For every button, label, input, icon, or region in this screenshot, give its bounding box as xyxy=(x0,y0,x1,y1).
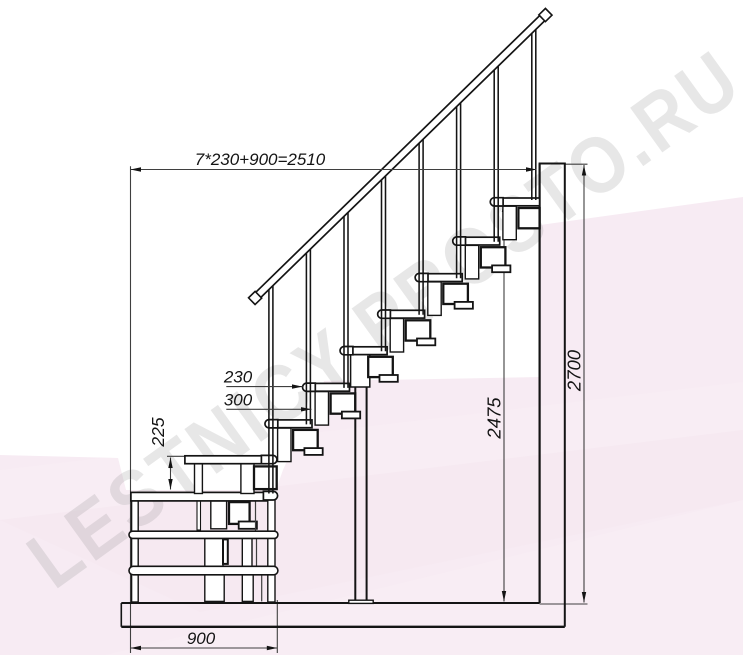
svg-text:2700: 2700 xyxy=(564,349,585,392)
svg-text:2475: 2475 xyxy=(484,397,505,440)
svg-text:300: 300 xyxy=(224,391,253,410)
svg-text:225: 225 xyxy=(148,417,168,447)
svg-text:900: 900 xyxy=(187,629,216,648)
svg-text:230: 230 xyxy=(223,368,253,387)
svg-text:7*230+900=2510: 7*230+900=2510 xyxy=(195,150,326,169)
